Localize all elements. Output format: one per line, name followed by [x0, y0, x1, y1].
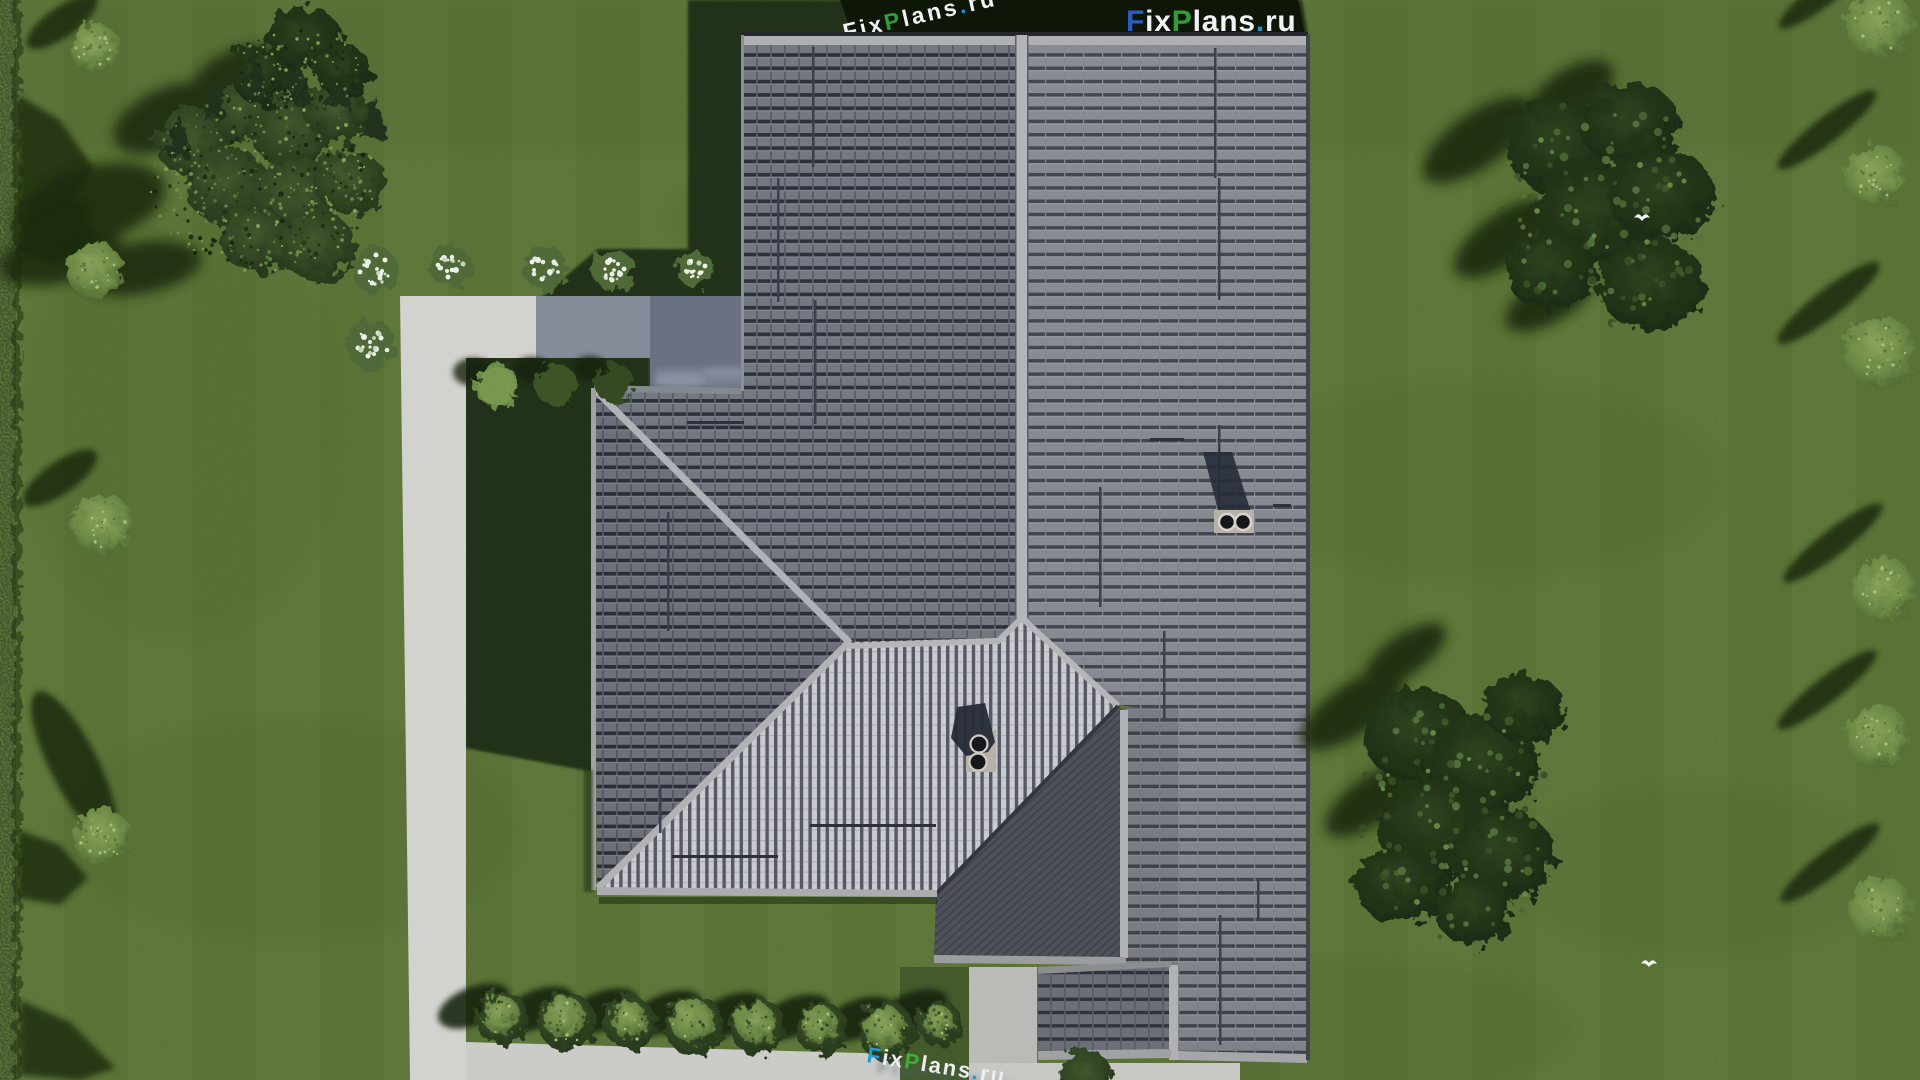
- svg-text:FixPlans.ru: FixPlans.ru: [1126, 5, 1297, 38]
